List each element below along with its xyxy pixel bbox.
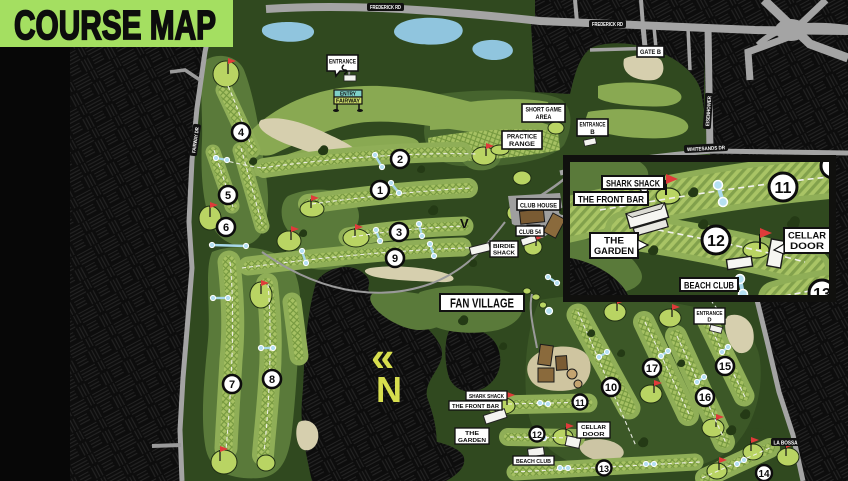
svg-text:ENTRANCE: ENTRANCE — [580, 122, 606, 129]
svg-text:ENTRANCE: ENTRANCE — [329, 59, 356, 66]
svg-text:CELLAR: CELLAR — [788, 231, 827, 241]
svg-text:FREDERICK RD: FREDERICK RD — [370, 5, 401, 11]
svg-text:COURSE MAP: COURSE MAP — [14, 2, 216, 48]
svg-text:RANGE: RANGE — [509, 141, 535, 148]
svg-text:CLUB HOUSE: CLUB HOUSE — [520, 202, 558, 209]
svg-text:SHARK SHACK: SHARK SHACK — [469, 394, 505, 400]
svg-text:14: 14 — [758, 469, 770, 480]
svg-text:BEACH CLUB: BEACH CLUB — [684, 280, 734, 290]
svg-text:V: V — [460, 216, 469, 231]
svg-text:BIRDIE: BIRDIE — [493, 244, 515, 250]
svg-text:PRACTICE: PRACTICE — [507, 134, 537, 141]
svg-text:7: 7 — [229, 379, 235, 391]
svg-text:BEACH CLUB: BEACH CLUB — [516, 459, 551, 465]
svg-text:FAIRWAY: FAIRWAY — [336, 99, 361, 105]
svg-text:9: 9 — [392, 253, 398, 265]
svg-text:SHACK: SHACK — [493, 251, 515, 257]
svg-text:5: 5 — [225, 190, 231, 202]
svg-text:GATE B: GATE B — [640, 49, 661, 56]
svg-text:SHARK SHACK: SHARK SHACK — [606, 178, 660, 188]
svg-text:N: N — [376, 369, 402, 410]
svg-text:FAN VILLAGE: FAN VILLAGE — [450, 297, 514, 311]
svg-text:6: 6 — [223, 222, 229, 234]
svg-text:SHORT GAME: SHORT GAME — [526, 107, 562, 114]
svg-text:17: 17 — [646, 363, 658, 375]
svg-text:13: 13 — [599, 464, 609, 474]
svg-text:THE: THE — [465, 431, 479, 437]
svg-text:2: 2 — [397, 154, 403, 166]
svg-text:FREDERICK RD: FREDERICK RD — [592, 22, 623, 28]
svg-text:11: 11 — [575, 398, 585, 408]
svg-text:12: 12 — [532, 430, 542, 440]
svg-text:15: 15 — [719, 361, 731, 373]
svg-text:THE FRONT BAR: THE FRONT BAR — [452, 404, 500, 410]
svg-text:AREA: AREA — [536, 114, 552, 121]
svg-text:10: 10 — [605, 382, 617, 394]
svg-text:12: 12 — [707, 233, 725, 250]
svg-text:D: D — [707, 318, 711, 324]
svg-text:GARDEN: GARDEN — [458, 438, 486, 444]
svg-text:THE: THE — [604, 236, 624, 246]
svg-text:DOOR: DOOR — [583, 432, 606, 438]
svg-text:ENTRY: ENTRY — [340, 92, 357, 98]
svg-text:LA BOSSA: LA BOSSA — [774, 440, 798, 446]
svg-text:B: B — [590, 129, 595, 136]
svg-text:CLUB 54: CLUB 54 — [519, 230, 542, 236]
svg-text:3: 3 — [396, 227, 402, 239]
svg-text:1: 1 — [377, 185, 383, 197]
svg-text:11: 11 — [775, 180, 792, 197]
svg-text:GARDEN: GARDEN — [594, 246, 634, 256]
svg-text:8: 8 — [269, 374, 275, 386]
svg-text:DOOR: DOOR — [790, 241, 825, 251]
svg-text:ENTRANCE: ENTRANCE — [697, 311, 723, 317]
svg-text:16: 16 — [699, 392, 711, 404]
svg-text:4: 4 — [238, 127, 245, 139]
svg-text:CELLAR: CELLAR — [581, 425, 607, 431]
svg-text:THE FRONT BAR: THE FRONT BAR — [578, 194, 644, 204]
